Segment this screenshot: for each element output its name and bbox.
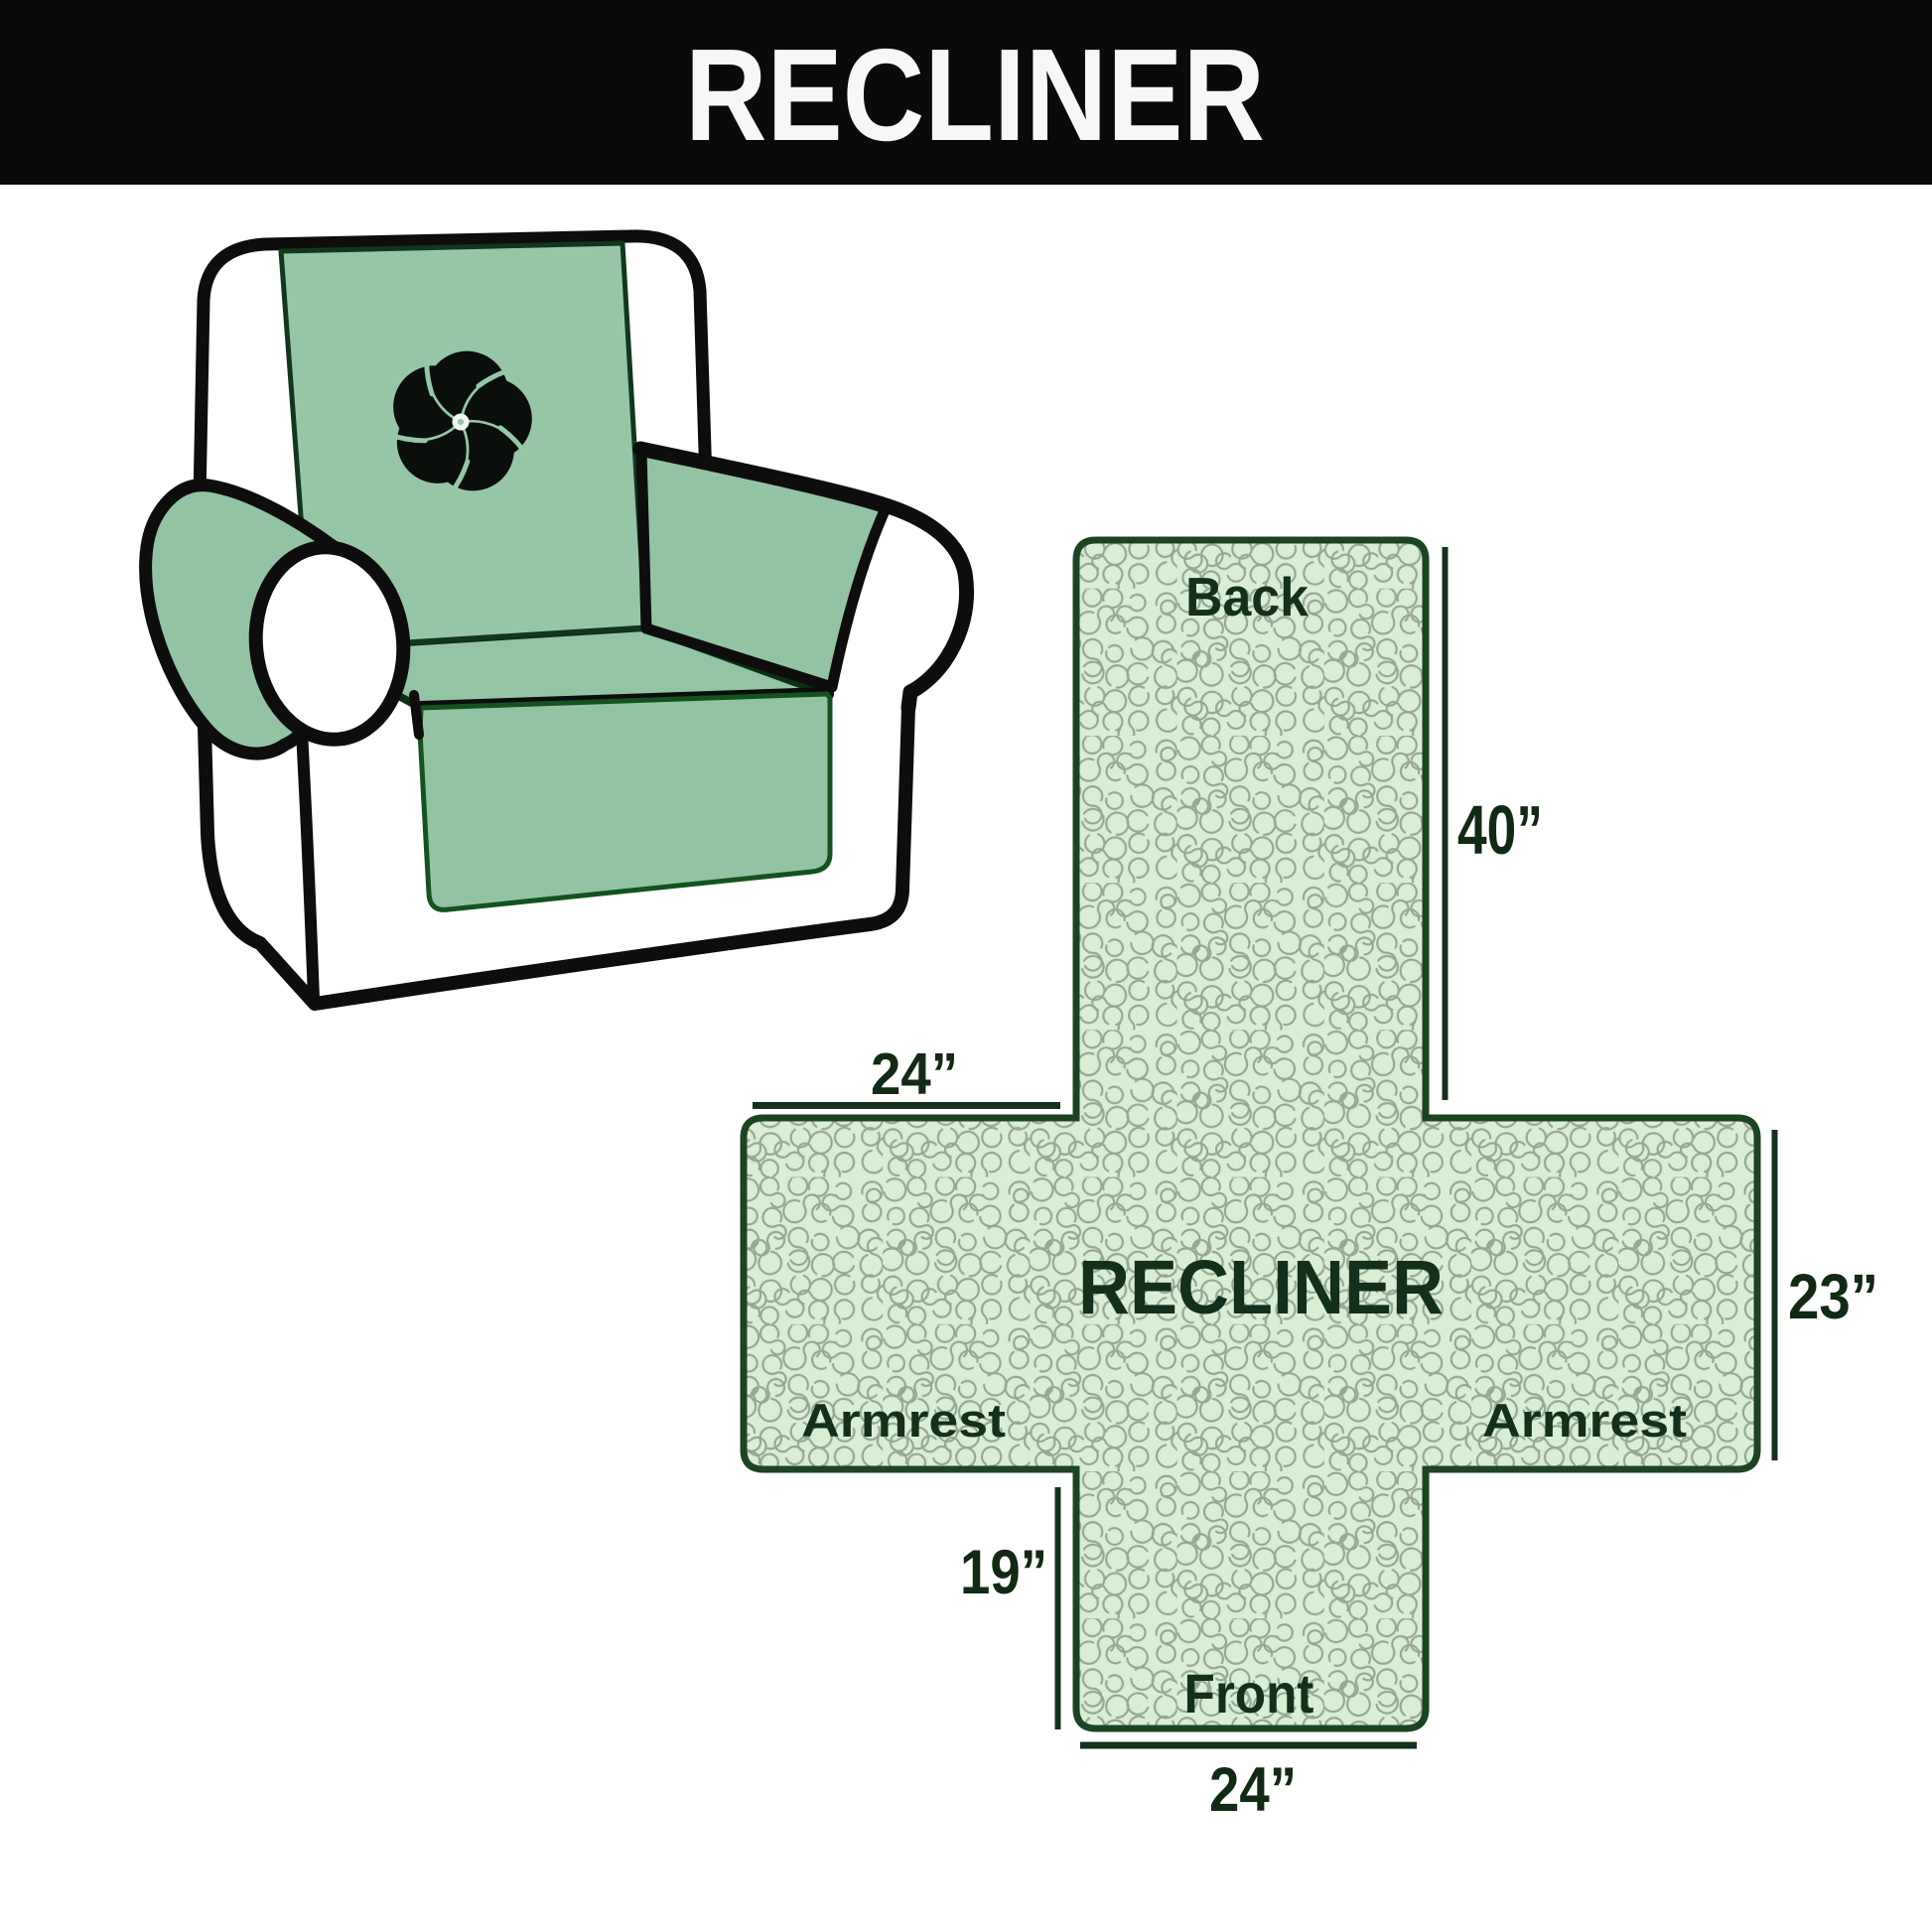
- svg-text:24”: 24”: [1209, 1755, 1297, 1825]
- svg-text:19”: 19”: [960, 1538, 1047, 1607]
- svg-text:Front: Front: [1184, 1662, 1314, 1725]
- svg-text:23”: 23”: [1788, 1261, 1878, 1332]
- svg-text:Armrest: Armrest: [1482, 1394, 1687, 1447]
- svg-text:Armrest: Armrest: [801, 1394, 1006, 1447]
- svg-text:40”: 40”: [1457, 791, 1543, 869]
- svg-text:RECLINER: RECLINER: [1078, 1245, 1444, 1330]
- svg-text:24”: 24”: [871, 1041, 958, 1107]
- svg-text:RECLINER: RECLINER: [685, 22, 1265, 168]
- svg-text:Back: Back: [1185, 566, 1309, 627]
